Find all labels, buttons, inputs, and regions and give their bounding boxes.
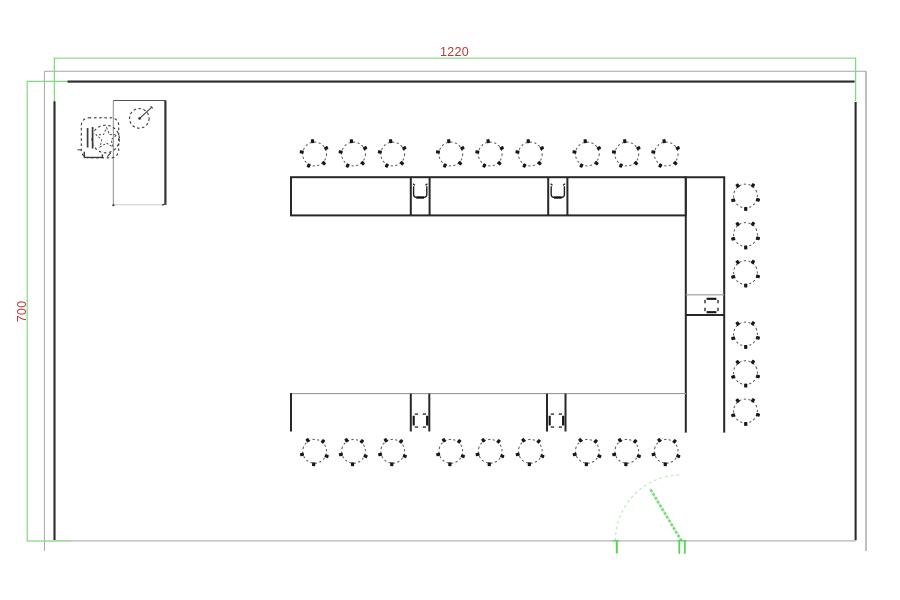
svg-text:1220: 1220 [440, 45, 469, 59]
svg-text:700: 700 [15, 301, 29, 323]
